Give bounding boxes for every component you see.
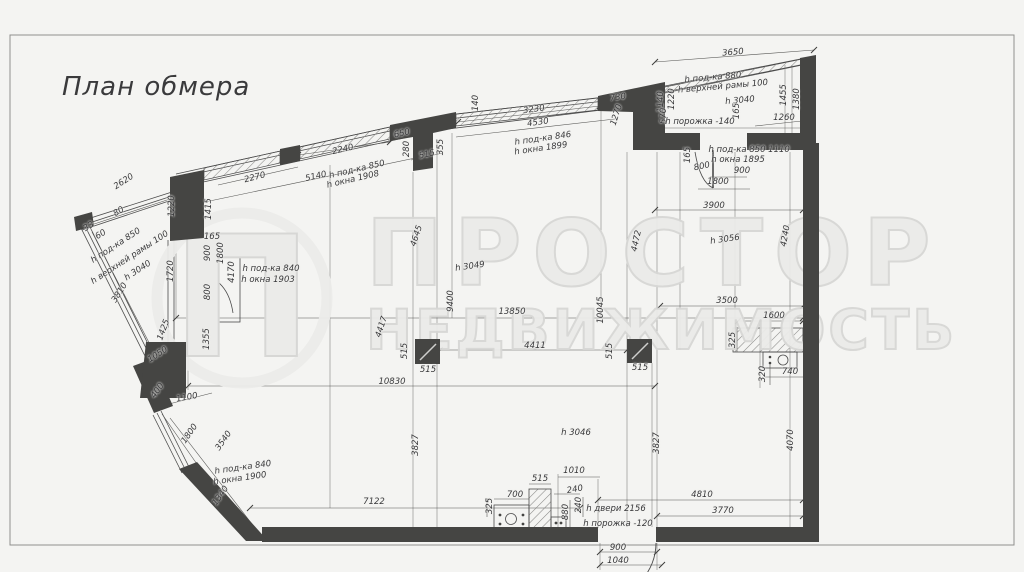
dim-label: 515 [632, 364, 648, 373]
dim-label: 4530 [527, 117, 550, 128]
dim-label: h окна 1895 [711, 156, 765, 165]
dim-label: 9400 [447, 290, 456, 312]
dim-label: 1455 [780, 84, 789, 106]
dim-label: 4417 [375, 315, 390, 338]
dim-label: 730 [609, 93, 626, 104]
dim-label: 1270 [610, 103, 625, 126]
dim-label: h двери 2156 [586, 505, 645, 514]
dim-label: 1220 [668, 88, 677, 110]
floor-plan-canvas: П ПРОСТОР НЕДВИЖИМОСТЬ [0, 0, 1024, 572]
dim-label: 1040 [607, 557, 629, 566]
page-title: План обмера [62, 72, 250, 102]
dim-label: 4645 [410, 224, 425, 247]
dim-label: 3827 [653, 432, 662, 454]
dim-label: 1800 [180, 423, 199, 446]
dim-label: 60 [94, 228, 108, 241]
dim-label: 1010 [563, 467, 585, 476]
dim-label: 3500 [716, 297, 738, 306]
dim-label: 13850 [498, 308, 525, 317]
dim-label: 165 [684, 147, 693, 163]
dim-label: 1720 [167, 260, 176, 282]
dim-label: 1050 [147, 346, 170, 365]
dim-label: h под-ка 840 [242, 265, 299, 274]
dim-label: 515 [418, 149, 436, 161]
dim-label: 7122 [363, 498, 385, 507]
dim-label: 1600 [763, 312, 785, 321]
dim-label: 80 [112, 205, 126, 218]
dim-label: 140 [472, 95, 481, 111]
dim-label: 650 [393, 128, 411, 140]
dim-label: 900 [610, 544, 626, 553]
dim-label: h порожка -140 [665, 118, 734, 127]
dim-label: 800 [204, 284, 213, 300]
dim-label: 740 [782, 368, 798, 377]
dim-label: 10830 [378, 378, 405, 387]
dim-label: 1100 [176, 392, 199, 404]
dim-label: 325 [486, 498, 495, 514]
dim-label: 4170 [228, 261, 237, 283]
dim-label: 1800 [707, 178, 729, 187]
dim-label: h 3046 [561, 429, 591, 438]
dim-label: 4411 [524, 342, 546, 351]
dim-label: 400 [150, 382, 166, 400]
dim-label: 515 [606, 343, 615, 359]
dim-label: h 3049 [455, 261, 486, 274]
dim-label: 515 [401, 343, 410, 359]
dim-label: 3900 [703, 202, 725, 211]
dim-label: 4810 [691, 491, 713, 500]
dim-label: 1110 [768, 146, 790, 155]
dim-label: 3540 [214, 430, 233, 453]
dim-label: 280 [403, 141, 412, 157]
dim-label: 5140 [305, 170, 328, 183]
dim-label: 900 [734, 167, 750, 176]
dim-label: 320 [759, 366, 768, 382]
dim-label: 3230 [523, 104, 546, 115]
dim-label: 3827 [412, 434, 421, 456]
dim-label: 355 [437, 139, 446, 155]
dim-label: 33 [82, 220, 96, 233]
dim-label: 1800 [217, 242, 226, 264]
dim-label: 4240 [780, 225, 792, 248]
dim-label: 3770 [712, 507, 734, 516]
dim-label: 800 [693, 161, 711, 173]
dim-label: 880 [562, 504, 571, 520]
dim-label: 1415 [205, 198, 214, 220]
dim-label: 3810 [111, 282, 130, 305]
dim-label: 4070 [787, 429, 796, 451]
dim-label: 700 [507, 491, 523, 500]
dim-label: 900 [204, 245, 213, 261]
dim-label: 1220 [168, 195, 177, 217]
dim-label: 240 [566, 484, 583, 495]
dim-label: 325 [729, 332, 738, 348]
dim-label: 1260 [773, 114, 795, 123]
dim-label: h под-ка 850 [708, 146, 765, 155]
dim-label: 1340 [211, 485, 230, 508]
dim-label: 2620 [113, 173, 136, 192]
dim-label: h окна 1903 [241, 276, 295, 285]
dim-label: 515 [420, 366, 436, 375]
dim-label: 4472 [631, 230, 644, 253]
dim-label: 2270 [243, 171, 266, 184]
dim-label: 10045 [597, 296, 606, 323]
dim-label: 3650 [722, 48, 744, 58]
dim-label: 1355 [203, 328, 212, 350]
dim-label: 1380 [793, 88, 802, 110]
dim-label: 515 [532, 475, 548, 484]
dim-label: h 3056 [710, 234, 741, 247]
dim-label: 2240 [332, 143, 355, 156]
dim-label: 1425 [156, 318, 171, 341]
dim-label: 240 [575, 497, 584, 513]
dim-label: h порожка -120 [583, 520, 652, 529]
dim-label: 165 [204, 233, 220, 242]
